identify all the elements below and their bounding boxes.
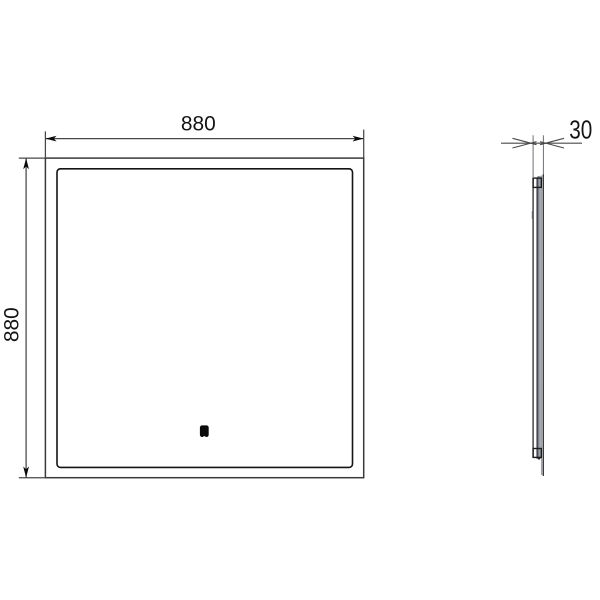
svg-text:30: 30 xyxy=(569,116,592,145)
svg-text:880: 880 xyxy=(1,307,24,342)
svg-text:880: 880 xyxy=(181,112,216,135)
